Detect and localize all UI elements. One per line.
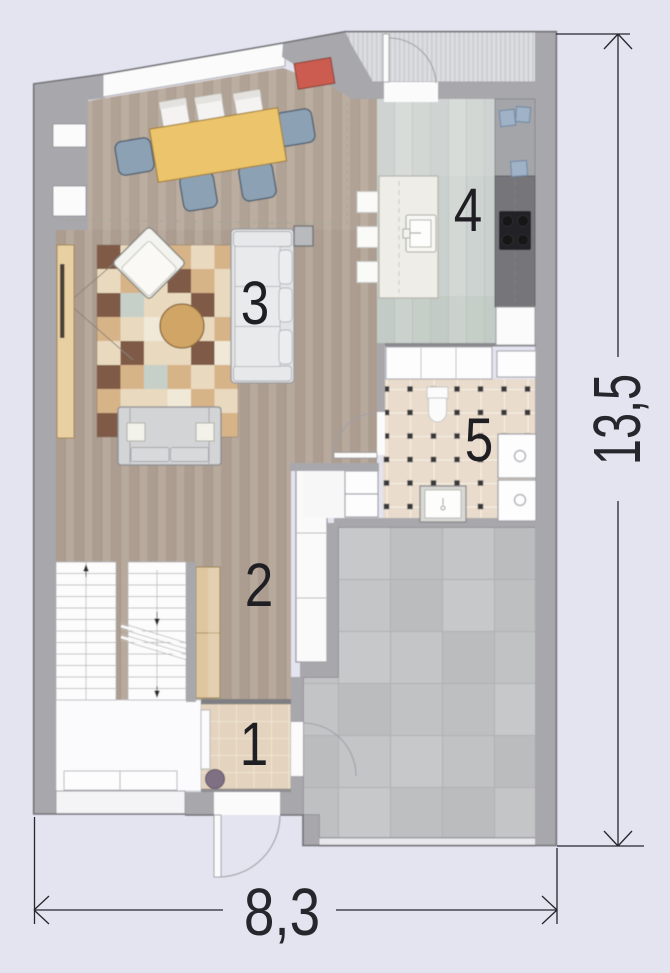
svg-text:5: 5 (465, 406, 493, 474)
svg-text:13,5: 13,5 (581, 374, 655, 465)
svg-text:4: 4 (454, 176, 482, 244)
svg-text:8,3: 8,3 (244, 875, 320, 949)
svg-text:1: 1 (240, 710, 268, 778)
svg-text:3: 3 (241, 269, 269, 337)
svg-text:2: 2 (245, 551, 273, 619)
